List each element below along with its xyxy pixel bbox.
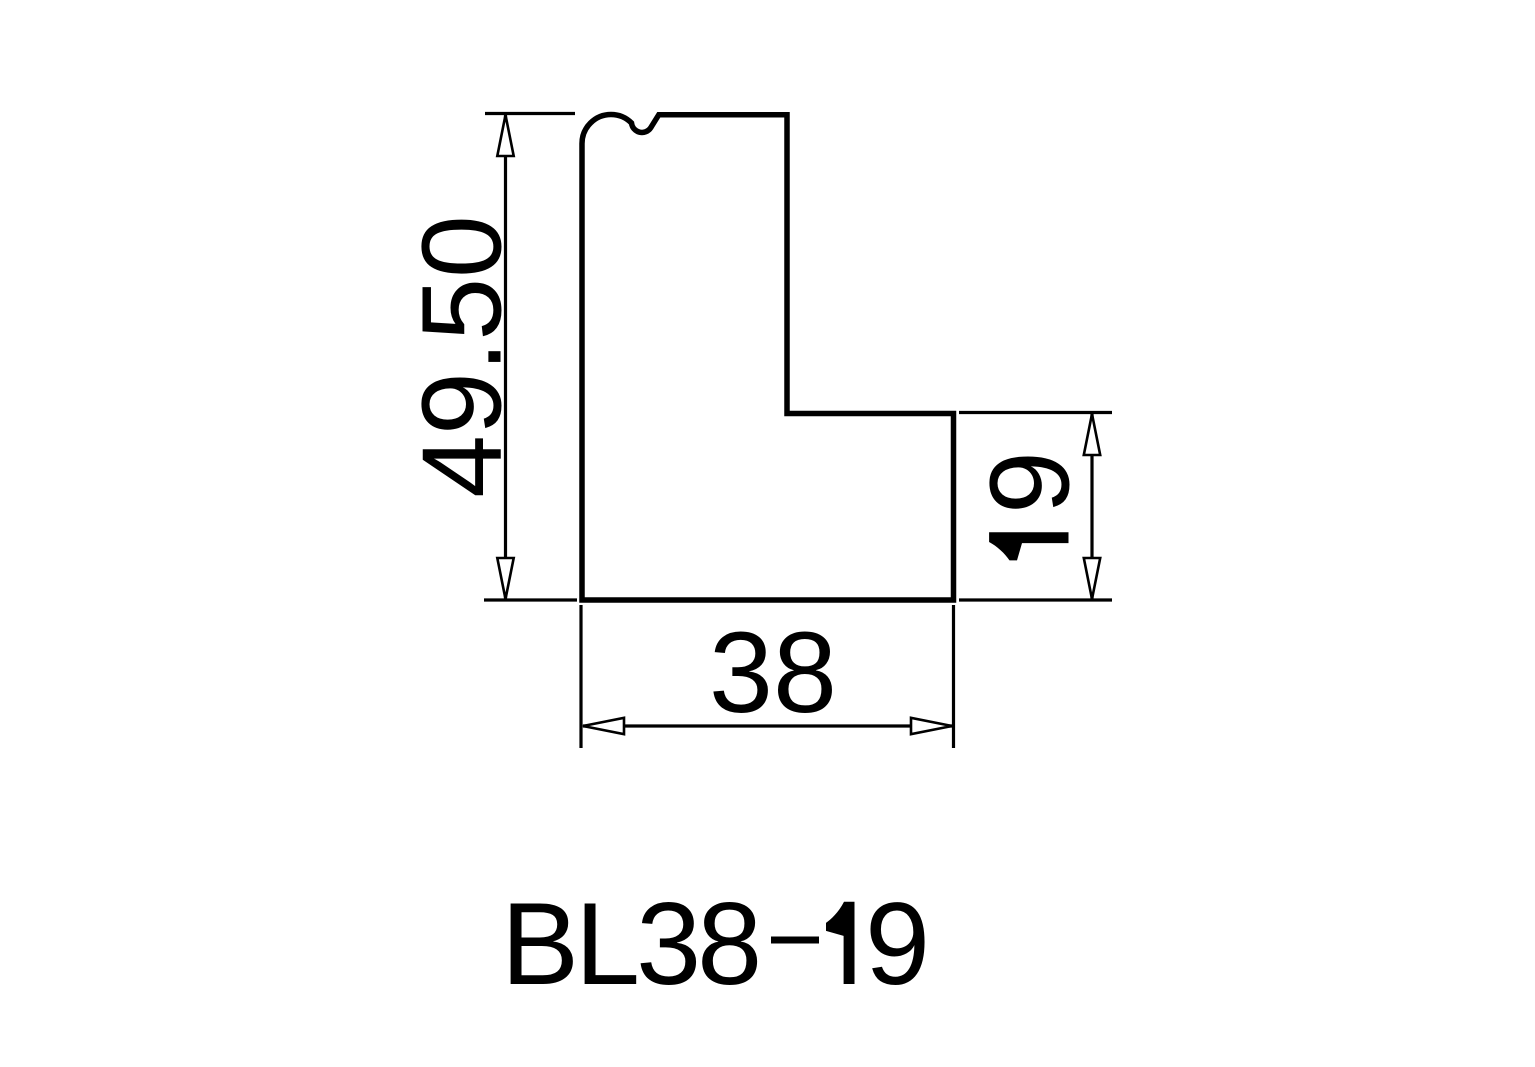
svg-text:9: 9 — [967, 451, 1093, 514]
svg-text:9: 9 — [865, 878, 930, 1009]
svg-text:49.50: 49.50 — [399, 215, 525, 498]
svg-text:BL38: BL38 — [501, 878, 758, 1009]
svg-text:38: 38 — [709, 609, 837, 737]
